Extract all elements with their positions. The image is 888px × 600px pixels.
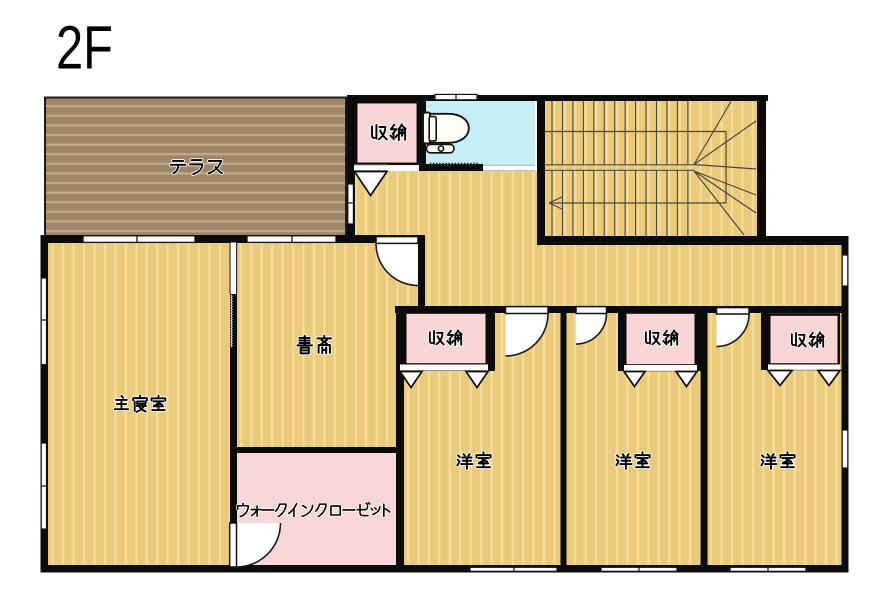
svg-text:2F: 2F xyxy=(56,14,113,82)
